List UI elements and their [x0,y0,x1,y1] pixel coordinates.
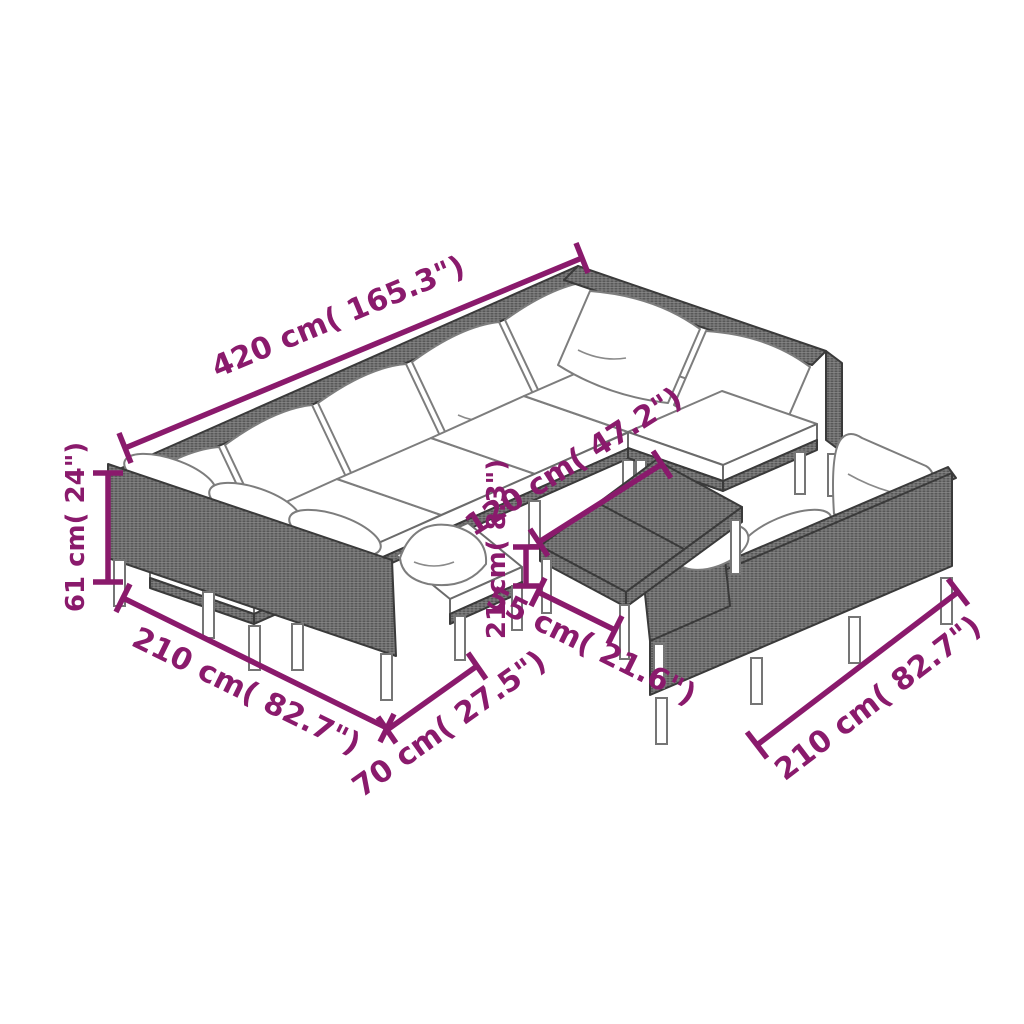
sofa-leg [795,452,805,494]
dimension-label-backrest-height: 61 cm( 24") [61,442,91,612]
dimension-label-left-length: 210 cm( 82.7") [126,621,365,763]
sofa-leg [455,616,465,660]
sofa-leg [849,617,860,663]
dimension-tick [747,732,767,758]
sofa-leg [292,624,303,670]
sofa-leg [203,592,214,638]
diagram-canvas: 420 cm( 165.3") 61 cm( 24") 210 cm( 82.7… [0,0,1024,1024]
sofa-leg [656,698,667,744]
dimension-tick [468,653,486,679]
wing-outer-face [826,351,842,452]
sofa-leg [381,654,392,700]
product-dimension-diagram: 420 cm( 165.3") 61 cm( 24") 210 cm( 82.7… [0,0,1024,1024]
sofa-leg [751,658,762,704]
table-leg [731,520,740,574]
dimension-label-right-length: 210 cm( 82.7") [768,609,988,788]
